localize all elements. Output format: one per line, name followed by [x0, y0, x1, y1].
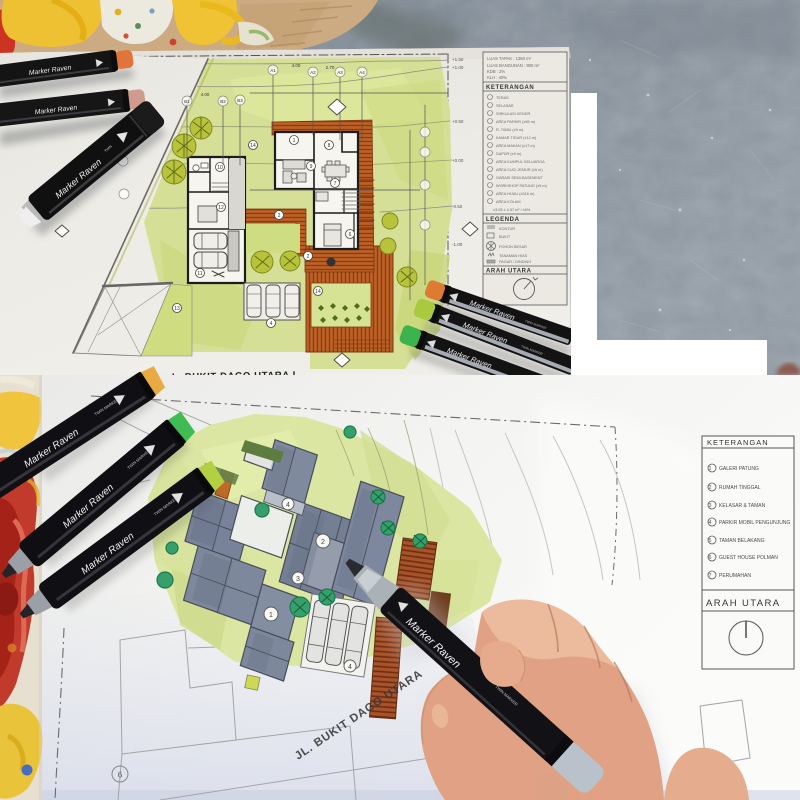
svg-text:A4: A4 [359, 70, 365, 75]
svg-text:1: 1 [269, 612, 273, 619]
svg-text:11: 11 [197, 271, 202, 277]
svg-text:1: 1 [709, 466, 712, 472]
svg-text:2: 2 [321, 539, 325, 546]
svg-text:14: 14 [250, 143, 256, 149]
svg-text:+1.00: +1.00 [452, 65, 464, 70]
svg-text:RUMAH TINGGAL: RUMAH TINGGAL [719, 485, 761, 491]
svg-text:KELASAR & TAMAN: KELASAR & TAMAN [719, 503, 766, 509]
svg-text:3: 3 [709, 503, 712, 509]
svg-text:4: 4 [286, 502, 290, 509]
svg-text:LEGENDA: LEGENDA [486, 217, 520, 223]
svg-text:4: 4 [709, 520, 712, 526]
svg-text:6: 6 [709, 555, 712, 561]
svg-text:TANAMAN HIAS: TANAMAN HIAS [499, 254, 528, 258]
svg-text:±3.05 ± 4.57 m² / ±6%: ±3.05 ± 4.57 m² / ±6% [493, 208, 531, 212]
svg-text:TERAS: TERAS [496, 96, 509, 100]
svg-text:3: 3 [296, 576, 300, 583]
svg-text:+1.50: +1.50 [452, 57, 464, 62]
svg-text:13: 13 [174, 306, 180, 312]
svg-text:1: 1 [293, 138, 296, 144]
svg-text:AREA KUMPUL KELUARGA: AREA KUMPUL KELUARGA [496, 160, 545, 164]
svg-text:14: 14 [315, 289, 321, 295]
svg-text:B2: B2 [220, 99, 226, 104]
svg-text:AREA KOLAM: AREA KOLAM [496, 200, 520, 204]
svg-text:AREA CUCI JEMUR (±6 m): AREA CUCI JEMUR (±6 m) [496, 168, 543, 172]
svg-text:AREA MAKAN (±17 m): AREA MAKAN (±17 m) [496, 144, 536, 148]
svg-text:B3: B3 [237, 98, 243, 103]
svg-text:12: 12 [218, 205, 224, 211]
svg-text:2: 2 [709, 485, 712, 491]
svg-text:KETERANGAN: KETERANGAN [486, 85, 534, 91]
svg-text:ARAH UTARA: ARAH UTARA [486, 269, 532, 275]
svg-text:9: 9 [310, 164, 313, 170]
svg-text:5: 5 [709, 538, 712, 544]
svg-text:KETERANGAN: KETERANGAN [707, 438, 769, 447]
svg-text:PARKIR MOBIL PENGUNJUNG: PARKIR MOBIL PENGUNJUNG [719, 520, 791, 526]
svg-text:R. TAMU (±9 m): R. TAMU (±9 m) [496, 128, 524, 132]
svg-text:SIRKULASI KENDR.: SIRKULASI KENDR. [496, 112, 531, 116]
svg-text:BUKIT: BUKIT [499, 235, 511, 239]
svg-text:PAGAR / DINDING: PAGAR / DINDING [499, 260, 531, 264]
svg-text:-0.50: -0.50 [452, 204, 463, 209]
svg-text:PERUMAHAN: PERUMAHAN [719, 573, 751, 579]
svg-text:GUEST HOUSE POLMAN: GUEST HOUSE POLMAN [719, 555, 778, 561]
svg-text:10: 10 [217, 165, 223, 171]
svg-text:4.00: 4.00 [292, 63, 301, 68]
svg-text:A2: A2 [310, 70, 316, 75]
svg-text:4: 4 [270, 321, 273, 327]
svg-text:LUAS BANGUNAN : 900 m²: LUAS BANGUNAN : 900 m² [487, 63, 540, 68]
svg-text:GALERI PATUNG: GALERI PATUNG [719, 466, 759, 472]
svg-text:B1: B1 [184, 99, 190, 104]
svg-text:-1.00: -1.00 [452, 242, 463, 247]
svg-text:KLH : 40%: KLH : 40% [487, 75, 507, 80]
svg-text:SELASAR: SELASAR [496, 104, 514, 108]
svg-text:6: 6 [349, 232, 352, 238]
svg-text:KONTUR: KONTUR [499, 227, 515, 231]
svg-text:WORKSHOP PATUNG (±5 m): WORKSHOP PATUNG (±5 m) [496, 184, 548, 188]
svg-text:KDB : 2%: KDB : 2% [487, 69, 505, 74]
svg-text:AREA PARKIR (±65 m): AREA PARKIR (±65 m) [496, 120, 536, 124]
svg-text:A1: A1 [270, 68, 276, 73]
svg-text:A3: A3 [337, 70, 343, 75]
svg-text:KAMAR TIDUR (±12 m): KAMAR TIDUR (±12 m) [496, 136, 537, 140]
svg-text:8: 8 [328, 143, 331, 149]
svg-text:POHON BESAR: POHON BESAR [499, 245, 527, 249]
svg-text:6: 6 [118, 771, 123, 780]
svg-text:7: 7 [334, 181, 337, 187]
svg-text:+0.50: +0.50 [452, 119, 464, 124]
svg-text:2.70: 2.70 [326, 65, 335, 70]
svg-text:LUAS TAPAK : 1350 m²: LUAS TAPAK : 1350 m² [487, 56, 532, 61]
svg-text:TAMAN BELAKANG: TAMAN BELAKANG [719, 538, 765, 544]
svg-text:2: 2 [307, 254, 310, 260]
svg-text:AREA HIJAU (±516 m): AREA HIJAU (±516 m) [496, 192, 535, 196]
svg-text:GARASI SEMI-BASEMENT: GARASI SEMI-BASEMENT [496, 176, 544, 180]
svg-text:+0.00: +0.00 [452, 158, 464, 163]
svg-text:DAPUR (±9 m): DAPUR (±9 m) [496, 152, 522, 156]
svg-text:2: 2 [278, 213, 281, 219]
svg-text:4: 4 [348, 664, 352, 671]
svg-text:7: 7 [709, 573, 712, 579]
svg-text:4.00: 4.00 [201, 92, 210, 97]
svg-text:ARAH UTARA: ARAH UTARA [706, 598, 781, 609]
